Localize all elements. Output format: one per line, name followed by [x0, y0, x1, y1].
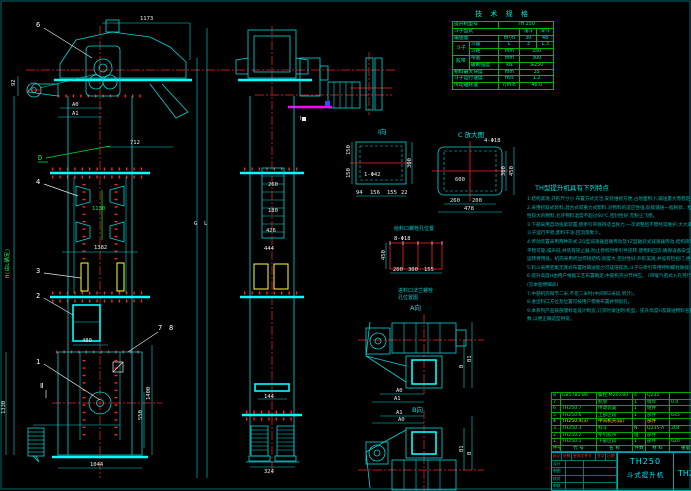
- spec-cell: 物料最大块度: [453, 69, 499, 76]
- sig-cell: 日期: [606, 453, 617, 460]
- spec-cell: 斗容: [469, 42, 499, 49]
- note-line: 5.料斗采用密集无底式布置时输送能力可成倍提高,斗子与牵引带用特制螺栓联接,装拆…: [527, 265, 691, 274]
- sig-cell: [584, 476, 617, 483]
- spec-cell: 浅斗: [520, 28, 537, 35]
- parts-list: 8GB5782-86螺栓 M20×804Q235 7机架1组焊0.0 6TH25…: [551, 392, 691, 452]
- dim-label: 300: [407, 158, 413, 168]
- note-line: 数,以便正确选型供货。: [527, 316, 691, 325]
- dim-label: B1: [467, 355, 473, 362]
- model-number: TH250: [618, 457, 673, 466]
- note-line: (见本图明细表): [527, 282, 691, 291]
- sig-cell: [566, 476, 584, 483]
- spec-cell: 46.0: [520, 83, 554, 90]
- callout-2: 2: [36, 292, 40, 300]
- detail-title: Ⅰ向: [378, 127, 386, 136]
- dim-label: 480: [82, 338, 92, 344]
- detail-title: 给料口螺栓孔位置: [394, 225, 434, 232]
- dim-label: A1: [394, 396, 401, 402]
- dim-label: 1173: [140, 16, 153, 22]
- note-line: 8.进出料口方位及位置可按用户需要布置并预留孔。: [527, 299, 691, 308]
- sig-cell: 审核: [552, 483, 566, 490]
- dim-label: 324: [264, 469, 275, 475]
- bom-cell: 螺栓 M20×80: [597, 393, 633, 400]
- callout-3: 3: [36, 267, 40, 275]
- bom-header-cell: 材 料: [646, 445, 670, 452]
- sig-row: 标记 处数 更改文件号 签字 日期: [552, 453, 617, 461]
- dim-label: 155: [424, 267, 434, 273]
- drawing-title-cell: TH250 斗式提升机: [618, 453, 674, 490]
- sig-row: 设计: [552, 461, 617, 469]
- note-line: 9.本系列产品按部颁标准设计制造,订货时请注明:机型、提升高度H及输送物料名称、…: [527, 308, 691, 317]
- dim-label: A0: [72, 102, 79, 108]
- sig-cell: [566, 461, 584, 468]
- callout-8: 8: [169, 324, 173, 332]
- dim-label: 260: [450, 198, 460, 204]
- sig-row: 审核: [552, 483, 617, 490]
- note-line: 7.中部机壳每节二米,不足二米时(中间带2米段,另计)。: [527, 291, 691, 300]
- spec-cell: 300: [520, 55, 554, 62]
- table-row: 7机架1组焊0.0: [552, 399, 691, 406]
- bom-cell: [670, 419, 691, 426]
- spec-cell: 1.2: [520, 76, 554, 83]
- note-line: 运转费用低。机壳采用折边焊接结构,刚度大,密封性好,外形美观,并设有检视门,便于…: [527, 256, 691, 265]
- dim-label: 150: [346, 145, 352, 155]
- bom-cell: 4: [552, 419, 561, 426]
- table-header-row: 件号代 号名 称件数材 料重量: [552, 445, 691, 452]
- bom-cell: 1: [633, 406, 646, 413]
- spec-cell: 破断强度: [469, 62, 499, 69]
- dim-label: 1400: [146, 387, 152, 400]
- bom-cell: TH250.4(3): [561, 419, 597, 426]
- dim-label: 300: [408, 267, 418, 273]
- spec-cell: m³/h: [499, 35, 520, 42]
- table-row: 3TH250.3料斗NQ235-A204: [552, 425, 691, 432]
- sig-cell: 设计: [552, 461, 566, 468]
- detail-title: C 放大图: [458, 130, 484, 139]
- bom-cell: 7: [552, 399, 561, 406]
- sig-cell: [584, 468, 617, 475]
- bom-cell: 1: [552, 439, 561, 446]
- dim-label: A1: [396, 410, 403, 416]
- dim-label: 600: [455, 177, 465, 183]
- sig-cell: [566, 483, 584, 490]
- spec-cell: 1.3: [537, 42, 554, 49]
- bom-cell: [633, 419, 646, 426]
- dim-label: A1: [72, 111, 79, 117]
- spec-cell: 传动轴转速: [453, 83, 499, 90]
- sig-cell: 签字: [596, 453, 606, 460]
- callout-6: 6: [36, 21, 40, 29]
- bom-cell: 部件: [646, 432, 670, 439]
- spec-cell: mm: [499, 55, 520, 62]
- table-row: 1TH250.1下部区段1部件620: [552, 439, 691, 446]
- sig-cell: 更改文件号: [572, 453, 596, 460]
- spec-cell: TH 250: [499, 22, 554, 29]
- drawing-code-cell: TH25: [674, 453, 691, 490]
- sig-cell: [566, 468, 584, 475]
- spec-cell: 斗距: [469, 49, 499, 56]
- bom-header-cell: 件数: [633, 445, 646, 452]
- plan-view-a: B B1 A0 A1 B向: [358, 314, 484, 414]
- dim-label: 550: [138, 410, 144, 420]
- dim-label: 1382: [94, 245, 107, 251]
- dim-label: 450: [381, 250, 387, 260]
- bom-cell: TH250.2: [561, 432, 597, 439]
- plan-view-b: A1 A0 B1 B: [358, 410, 484, 491]
- dim-label: 426: [266, 228, 276, 234]
- note-line: 2.采用挖取式装料,混合式或重力式卸料,对物料的适应性强,既能输送一般粉状、粒状…: [527, 205, 691, 214]
- bom-cell: 8: [552, 393, 561, 400]
- bom-header-cell: 重量: [670, 445, 691, 452]
- bom-cell: 牵引胶带: [597, 432, 633, 439]
- bom-cell: [670, 393, 691, 400]
- note-line: 3.下部采用自动张紧装置,使牵引带保持适当张力,一次调整后不需经常维护,大大减少…: [527, 222, 691, 231]
- spec-cell: kN: [499, 62, 520, 69]
- spec-cell: r/min: [499, 83, 520, 90]
- table-row: 8GB5782-86螺栓 M20×804Q235: [552, 393, 691, 400]
- bom-cell: 组焊: [646, 399, 670, 406]
- spec-cell: 输送量: [453, 35, 499, 42]
- spec-cell: 350: [520, 49, 554, 56]
- note-line: 平稳可靠,噪声低,并装有逆止器,防止停机时牵引件逆转,使物料回流,确保设备安全可…: [527, 248, 691, 257]
- bom-cell: 部件: [646, 419, 670, 426]
- front-elevation-view: 1173 712 92 A0 A1 1130 1382 H(由L确定) G L …: [1, 16, 396, 478]
- detail-view-c: C 放大图 4-Φ18 600 300 450 260 200 478: [432, 130, 515, 212]
- dim-label: 712: [130, 140, 140, 146]
- sig-row: 校对: [552, 476, 617, 484]
- bom-cell: 620: [670, 439, 691, 446]
- spec-table: 技 术 规 格 提升机型号 TH 250 斗子型式 浅斗 深斗 输送量 m³/h…: [452, 9, 554, 90]
- cad-drawing-canvas: 1173 712 92 A0 A1 1130 1382 H(由L确定) G L …: [0, 0, 691, 491]
- dim-label: 1044: [90, 462, 104, 468]
- bom-cell: TH250.7: [561, 406, 597, 413]
- dim-label: 1330: [1, 401, 7, 414]
- bom-cell: Q235-A: [646, 425, 670, 432]
- spec-cell: 3: [520, 42, 537, 49]
- dim-label: 144: [264, 394, 275, 400]
- sig-cell: [584, 483, 617, 490]
- callout-4: 4: [36, 178, 40, 186]
- spec-cell: 48: [537, 35, 554, 42]
- bom-cell: [670, 432, 691, 439]
- bom-cell: TH250.1: [561, 439, 597, 446]
- detail-view-i: Ⅰ向 150 150 300 94 156 155 22 1-Φ42: [346, 127, 413, 196]
- bom-cell: 1: [633, 412, 646, 419]
- callout-1: 1: [36, 358, 40, 366]
- bom-cell: TH250.3: [561, 425, 597, 432]
- spec-cell: 带宽: [469, 55, 499, 62]
- callout-d: D: [38, 154, 42, 162]
- bom-cell: 部件: [646, 412, 670, 419]
- bom-cell: 上部区段: [597, 412, 633, 419]
- bom-cell: 组: [633, 432, 646, 439]
- dim-label: 180: [268, 208, 278, 214]
- bom-cell: 传动装置: [597, 406, 633, 413]
- sig-row: 制图: [552, 468, 617, 476]
- bom-cell: Q235: [646, 393, 670, 400]
- bom-cell: 2: [552, 432, 561, 439]
- callout-7: 7: [158, 324, 162, 332]
- dim-label: 150: [346, 168, 352, 178]
- spec-cell: mm: [499, 49, 520, 56]
- dim-label: 200: [393, 267, 403, 273]
- hole-label: 8-Φ18: [394, 236, 411, 242]
- bom-cell: 料斗: [597, 425, 633, 432]
- sig-cell: 处数: [562, 453, 572, 460]
- sig-cell: 制图: [552, 468, 566, 475]
- bom-header-cell: 代 号: [561, 445, 597, 452]
- section-mark-1: Ⅰ: [300, 116, 302, 122]
- bom-cell: 204: [670, 425, 691, 432]
- bom-cell: 3: [552, 425, 561, 432]
- spec-cell: ≥250: [520, 62, 554, 69]
- bom-cell: 下部区段: [597, 439, 633, 446]
- spec-cell: 深斗: [537, 28, 554, 35]
- spec-cell: 胶带: [453, 55, 470, 69]
- bom-cell: 0.0: [670, 399, 691, 406]
- note-line: 斗子运行平稳,卸料干净,回流现象少。: [527, 230, 691, 239]
- spec-cell: mm: [499, 69, 520, 76]
- spec-cell: 斗子: [453, 42, 470, 56]
- bom-cell: 5: [552, 412, 561, 419]
- note-line: 6.提升高度H由用户根据工艺布置确定,中部机壳分节供应。 (带喉气密式入孔另行规…: [527, 273, 691, 282]
- dim-label: 92: [11, 79, 17, 86]
- spec-cell: 30: [520, 35, 537, 42]
- dim-label: 478: [464, 206, 474, 212]
- bom-header-cell: 名 称: [597, 445, 633, 452]
- dim-label: G: [194, 221, 197, 227]
- spec-table-title: 技 术 规 格: [452, 9, 554, 19]
- bom-cell: 1: [633, 399, 646, 406]
- bom-cell: 机架: [597, 399, 633, 406]
- table-row: 4TH250.4(3)中间机壳(段)部件: [552, 419, 691, 426]
- dim-label: 156: [370, 190, 380, 196]
- bom-cell: 中间机壳(段): [597, 419, 633, 426]
- dim-label: A0: [398, 417, 405, 423]
- bom-cell: TH250.6: [561, 412, 597, 419]
- dim-label: 155: [387, 190, 397, 196]
- sig-cell: 标记: [552, 453, 562, 460]
- bom-cell: 部件: [646, 439, 670, 446]
- dim-label: 94: [356, 190, 363, 196]
- sig-cell: 校对: [552, 476, 566, 483]
- bom-cell: [561, 399, 597, 406]
- dim-label: 450: [509, 166, 515, 176]
- bom-cell: N: [633, 425, 646, 432]
- section-mark-2: Ⅱ: [40, 382, 43, 390]
- bom-header-cell: 件号: [552, 445, 561, 452]
- feature-notes: TH型提升机具有下列特点 1.结构紧凑,外形尺寸小,布置方式灵活,安装维修方便,…: [527, 182, 691, 400]
- table-row: 5TH250.6上部区段1部件635: [552, 412, 691, 419]
- spec-cell: 斗子运行速度: [453, 76, 499, 83]
- dim-label: A0: [396, 388, 403, 394]
- bom-cell: 1: [633, 439, 646, 446]
- bom-cell: 6: [552, 406, 561, 413]
- table-row: 6TH250.7传动装置1组件: [552, 406, 691, 413]
- feed-flange-detail: 给料口螺栓孔位置 8-Φ18 450 200 300 155 进料口法兰螺栓 孔…: [381, 225, 442, 312]
- spec-cell: m/s: [499, 76, 520, 83]
- spec-cell: 35: [520, 69, 554, 76]
- hole-label: 4-Φ18: [484, 138, 501, 144]
- bom-cell: 635: [670, 412, 691, 419]
- spec-cell: 提升机型号: [453, 22, 499, 29]
- view-label-a: A向: [410, 303, 421, 312]
- bom-cell: [670, 406, 691, 413]
- dim-label: 1130: [92, 206, 105, 212]
- dim-label: 260: [268, 182, 278, 188]
- signature-table: 标记 处数 更改文件号 签字 日期 设计 制图 校对 审核: [552, 453, 618, 490]
- dim-label: B1: [459, 445, 465, 452]
- bom-cell: GB5782-86: [561, 393, 597, 400]
- bom-cell: 4: [633, 393, 646, 400]
- spec-cell: 斗子型式: [453, 28, 520, 35]
- spec-cell: L: [499, 42, 520, 49]
- note-line: 性较大的物料,允许物料温度不超过60℃,密封性好,无粉尘飞扬。: [527, 213, 691, 222]
- dim-label: 444: [264, 246, 275, 252]
- notes-title: TH型提升机具有下列特点: [535, 182, 691, 192]
- dim-label: L: [204, 221, 208, 227]
- title-block: 标记 处数 更改文件号 签字 日期 设计 制图 校对 审核 TH250 斗式提升…: [551, 452, 691, 491]
- dim-label: 22: [401, 190, 408, 196]
- bom-cell: 组件: [646, 406, 670, 413]
- view-label-b: B向: [412, 405, 423, 414]
- dim-label: 300: [501, 166, 507, 176]
- table-row: 2TH250.2牵引胶带组部件: [552, 432, 691, 439]
- side-elevation-view: 144 324 260 180 426 444 Ⅰ: [236, 26, 392, 476]
- product-name: 斗式提升机: [618, 469, 673, 479]
- hole-label: 1-Φ42: [364, 172, 381, 178]
- note-line: 4.传动装置采用两种形式:ZQ型减速器直联传动及YZ型轴装式减速器传动,结构简单…: [527, 239, 691, 248]
- feed-note: 进料口法兰螺栓: [398, 287, 433, 294]
- dim-label: 200: [472, 198, 482, 204]
- sig-cell: [584, 461, 617, 468]
- dim-label: H(由L确定): [3, 248, 11, 278]
- note-line: 1.结构紧凑,外形尺寸小,布置方式灵活,安装维修方便,占地面积小,输送量大而稳定…: [527, 196, 691, 205]
- feed-note: 孔位置图: [398, 294, 418, 301]
